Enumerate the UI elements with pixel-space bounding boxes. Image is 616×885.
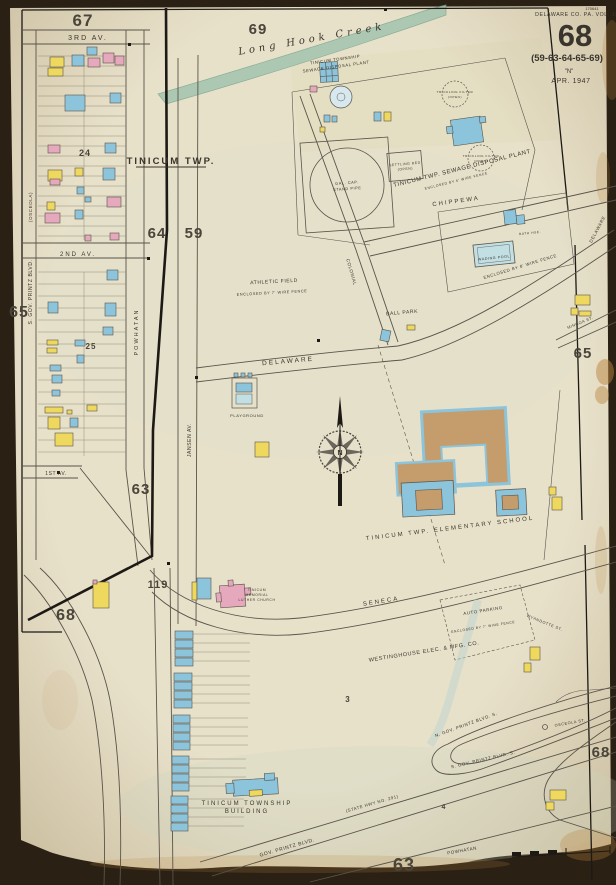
block-3: 3 — [345, 695, 350, 704]
trickling-filter-2-open: (OPEN) — [474, 159, 488, 163]
block-24: 24 — [79, 148, 91, 158]
adjacent-sheet-65-left: 65 — [9, 304, 29, 321]
trickling-filter-1-open: (OPEN) — [448, 95, 462, 99]
sanborn-map-sheet-68: N 170641 DELAWARE CO. PA. VOL. 10 68 (59… — [0, 0, 616, 885]
trickling-filter-2-label: TRICKLING FILTER — [463, 154, 500, 158]
trickling-filter-1-label: TRICKLING FILTER — [437, 90, 474, 94]
street-2nd-av: 2ND AV. — [60, 252, 96, 258]
playground-label: PLAYGROUND — [230, 413, 264, 418]
adjacent-sheet-64: 64 — [148, 225, 167, 242]
adjacent-sheet-65-right: 65 — [574, 345, 593, 362]
block-number-119: 119 — [148, 579, 169, 591]
adjacent-sheet-67: 67 — [73, 11, 94, 30]
n-mark: "N" — [565, 69, 574, 75]
adjacent-sheet-59: 59 — [185, 225, 204, 242]
tinicum-twp-label: TINICUM TWP. — [127, 156, 216, 167]
church-label-1: TINICUM — [248, 588, 266, 592]
church-label-2: MEMORIAL — [246, 593, 269, 597]
block-4: 4 — [442, 804, 447, 811]
adjacent-sheet-63-center: 63 — [132, 481, 151, 498]
street-jansen: JANSEN AV. — [187, 423, 193, 457]
sheet-number: 68 — [558, 18, 592, 53]
sheet-refs: (59-63-64-65-69) — [531, 53, 603, 64]
church-label-3: LUTHER CHURCH — [239, 598, 276, 602]
adjacent-sheet-63-bottom: 63 — [393, 855, 415, 875]
adjacent-sheet-68-bl: 68 — [56, 607, 76, 624]
adjacent-sheet-68-br: 68 — [592, 744, 611, 761]
block-25: 25 — [86, 342, 97, 351]
street-powhatan-v: POWHATAN — [134, 309, 140, 356]
twp-building-label-1: TINICUM TOWNSHIP — [202, 801, 293, 807]
adjacent-sheet-69: 69 — [249, 21, 268, 38]
street-1st-av: 1ST AV. — [45, 471, 67, 477]
street-osceola-paren: (OSCEOLA) — [28, 192, 33, 222]
date-label: APR. 1947 — [551, 78, 590, 85]
street-s-gov-printz: S. GOV. PRINTZ BLVD. — [28, 259, 34, 324]
twp-building-label-2: BUILDING — [225, 809, 269, 815]
map-canvas: N 170641 DELAWARE CO. PA. VOL. 10 68 (59… — [0, 0, 616, 885]
stamp-number: 170641 — [585, 6, 599, 11]
street-3rd-av: 3RD AV. — [68, 35, 108, 42]
